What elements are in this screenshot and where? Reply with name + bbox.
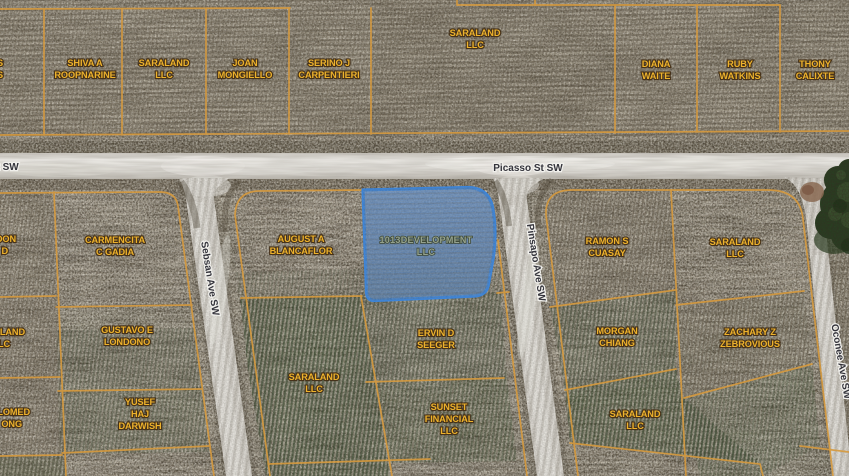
svg-text:DON: DON [0,234,16,244]
svg-text:CALIXTE: CALIXTE [796,71,835,81]
svg-text:RAMON S: RAMON S [586,236,629,246]
svg-text:MORGAN: MORGAN [596,326,638,336]
svg-text:SERINO J: SERINO J [308,58,350,68]
svg-text:SARALAND: SARALAND [610,409,661,419]
svg-text:CUASAY: CUASAY [588,248,625,258]
svg-text:S: S [0,58,3,68]
svg-text:WAITE: WAITE [642,71,671,81]
svg-text:LAND: LAND [0,327,25,337]
svg-text:WATKINS: WATKINS [720,71,761,81]
svg-text:LC: LC [0,339,10,349]
svg-text:MONGIELLO: MONGIELLO [218,70,273,80]
svg-text:RUBY: RUBY [727,59,753,69]
svg-text:LLC: LLC [726,249,744,259]
svg-text:LONDONO: LONDONO [104,337,150,347]
svg-text:LLC: LLC [155,70,173,80]
svg-text:SARALAND: SARALAND [710,237,761,247]
svg-text:SHIVA A: SHIVA A [67,58,103,68]
svg-text:C GADIA: C GADIA [96,247,135,257]
svg-text:YUSEF: YUSEF [125,397,156,407]
svg-text:CARMENCITA: CARMENCITA [85,235,146,245]
svg-text:AUGUST A: AUGUST A [278,234,325,244]
svg-text:FINANCIAL: FINANCIAL [425,414,474,424]
svg-text:DARWISH: DARWISH [118,421,161,431]
svg-text:LLC: LLC [417,247,436,257]
svg-text:DIANA: DIANA [642,59,671,69]
svg-text:ZEBROVIOUS: ZEBROVIOUS [720,339,780,349]
svg-text:BLANCAFLOR: BLANCAFLOR [270,246,333,256]
svg-text:LOMED: LOMED [0,407,30,417]
svg-text:Picasso St SW: Picasso St SW [0,162,19,173]
svg-text:LLC: LLC [305,384,323,394]
svg-text:GUSTAVO E: GUSTAVO E [101,325,153,335]
svg-text:D: D [1,246,8,256]
svg-text:ERVIN D: ERVIN D [418,328,455,338]
svg-text:LLC: LLC [626,421,644,431]
svg-text:LLC: LLC [466,40,484,50]
svg-text:SARALAND: SARALAND [450,28,501,38]
svg-text:HAJ: HAJ [131,409,149,419]
svg-text:SEEGER: SEEGER [417,340,455,350]
svg-text:ROOPNARINE: ROOPNARINE [54,70,115,80]
svg-text:LLC: LLC [440,426,458,436]
svg-text:S: S [0,70,3,80]
svg-text:1013DEVELOPMENT: 1013DEVELOPMENT [379,235,472,245]
svg-text:SUNSET: SUNSET [431,402,468,412]
svg-text:SARALAND: SARALAND [139,58,190,68]
svg-text:THONY: THONY [799,59,831,69]
svg-text:JOAN: JOAN [232,58,258,68]
svg-text:CHIANG: CHIANG [599,338,635,348]
svg-text:Picasso St SW: Picasso St SW [493,163,563,174]
svg-text:SARALAND: SARALAND [289,372,340,382]
svg-text:CARPENTIERI: CARPENTIERI [298,70,359,80]
svg-text:ONG: ONG [1,419,22,429]
svg-text:ZACHARY Z: ZACHARY Z [724,327,776,337]
